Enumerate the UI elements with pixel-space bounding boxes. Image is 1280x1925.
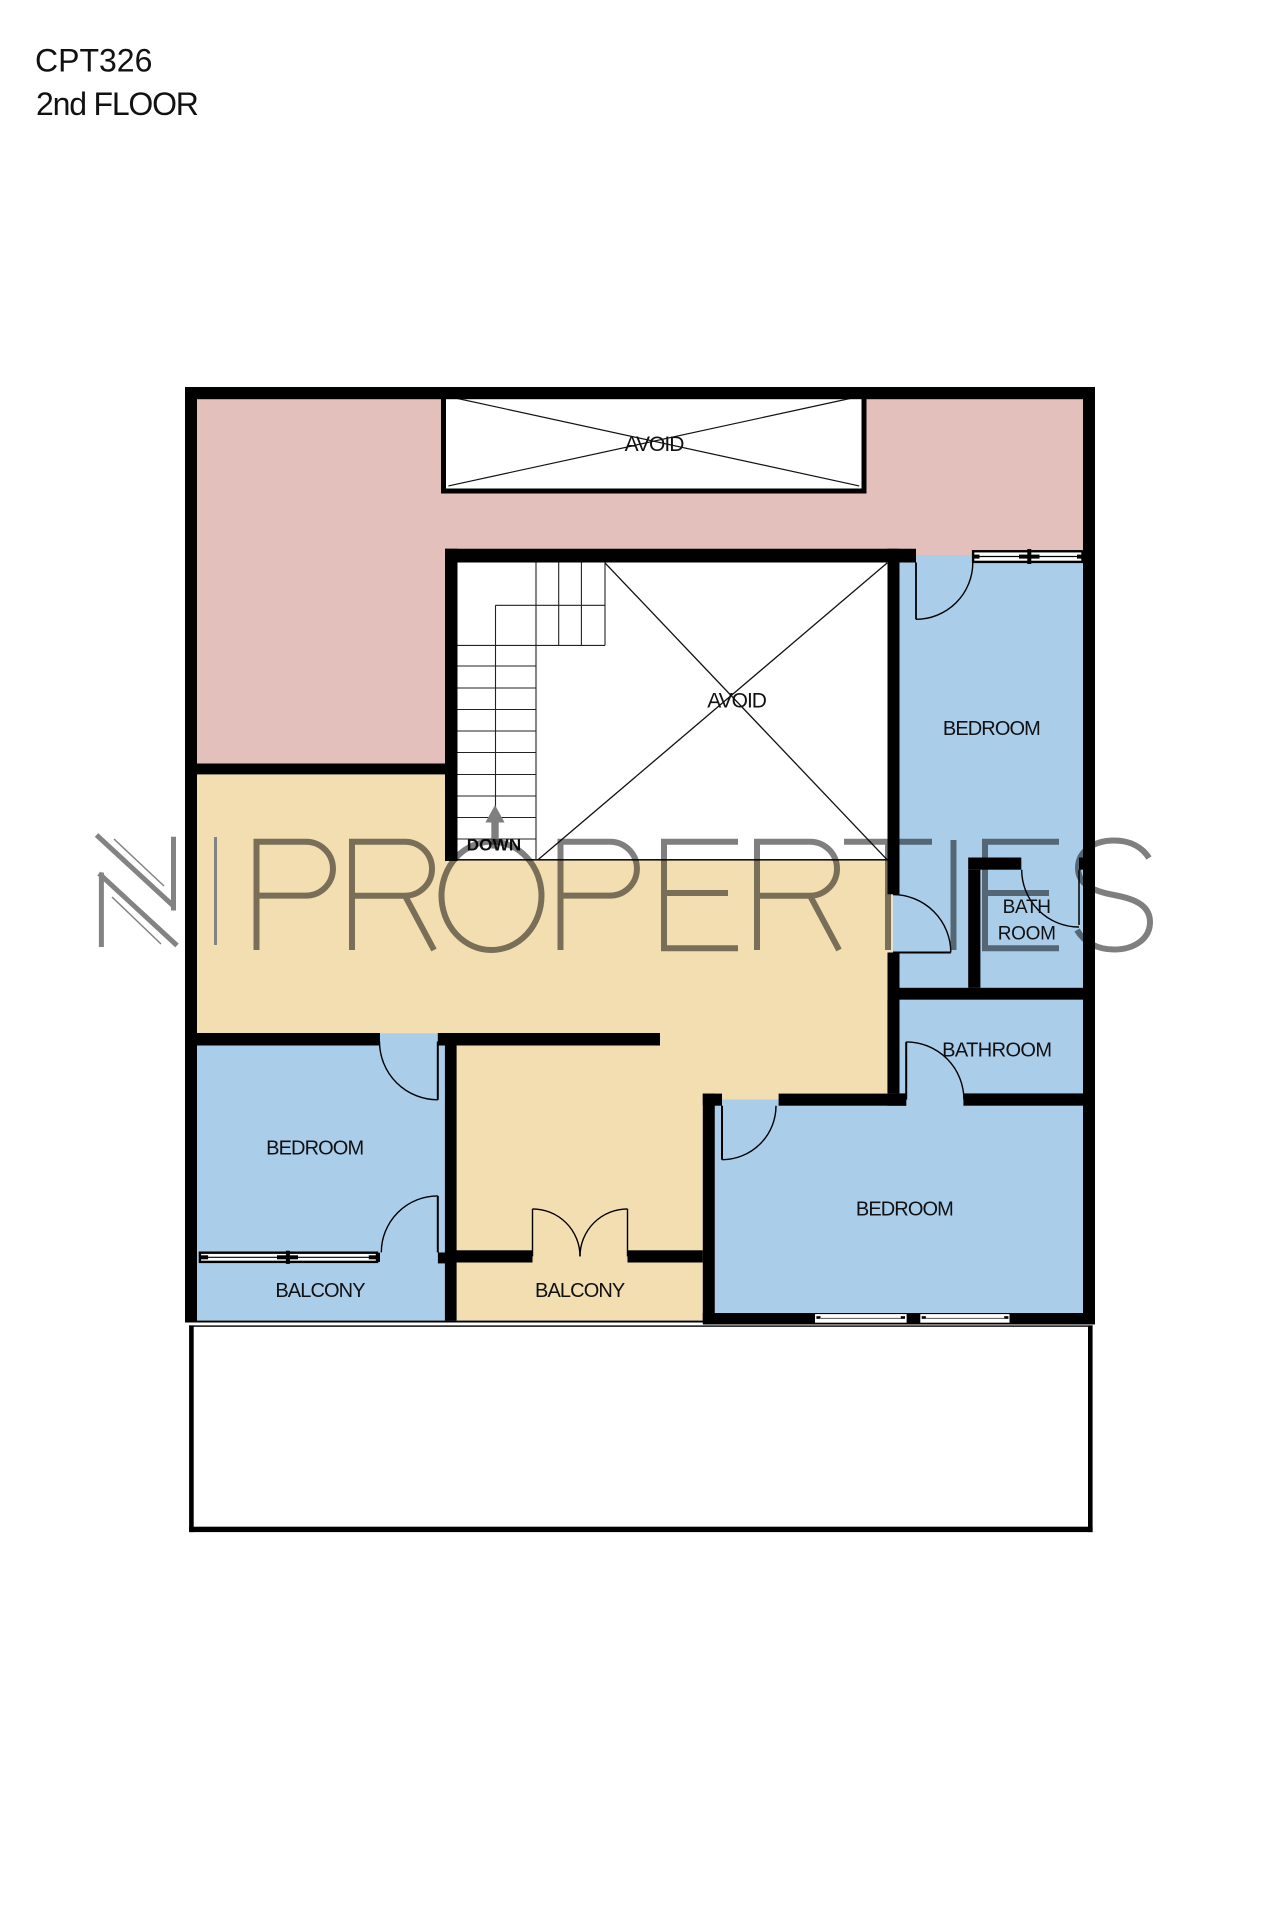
svg-text:BEDROOM: BEDROOM (943, 718, 1040, 740)
svg-text:BATHROOM: BATHROOM (942, 1039, 1051, 1061)
svg-text:BALCONY: BALCONY (535, 1280, 625, 1302)
svg-text:ROOM: ROOM (998, 923, 1056, 944)
svg-text:2nd FLOOR: 2nd FLOOR (36, 86, 198, 122)
svg-text:AVOID: AVOID (625, 433, 685, 456)
svg-text:BEDROOM: BEDROOM (266, 1138, 363, 1160)
svg-text:CPT326: CPT326 (35, 42, 152, 78)
svg-text:BATH: BATH (1003, 897, 1051, 918)
svg-text:AVOID: AVOID (707, 690, 767, 713)
svg-text:BEDROOM: BEDROOM (856, 1199, 953, 1221)
svg-text:BALCONY: BALCONY (275, 1280, 365, 1302)
